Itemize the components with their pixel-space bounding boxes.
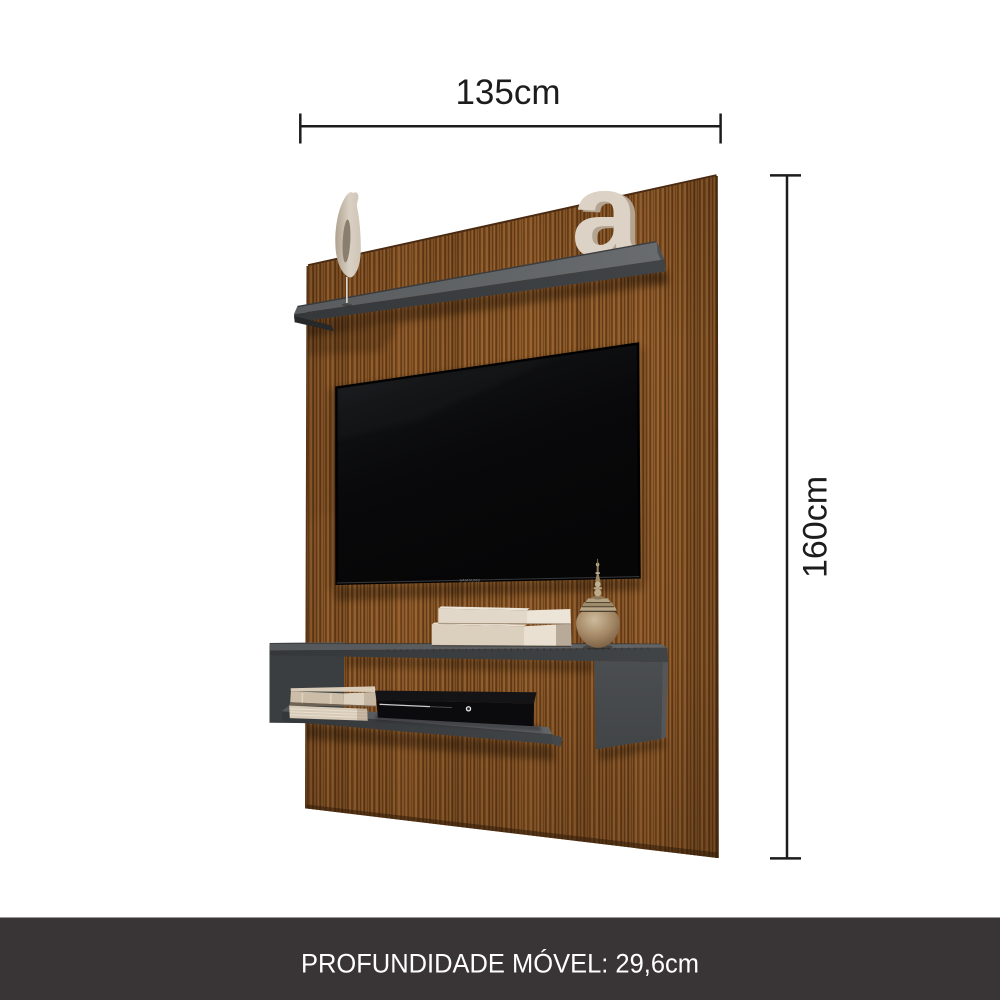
- svg-text:135cm: 135cm: [455, 73, 560, 112]
- svg-text:PROFUNDIDADE MÓVEL: 29,6cm: PROFUNDIDADE MÓVEL: 29,6cm: [301, 948, 699, 978]
- svg-text:SAMSUNG: SAMSUNG: [460, 578, 481, 582]
- svg-text:160cm: 160cm: [797, 476, 835, 578]
